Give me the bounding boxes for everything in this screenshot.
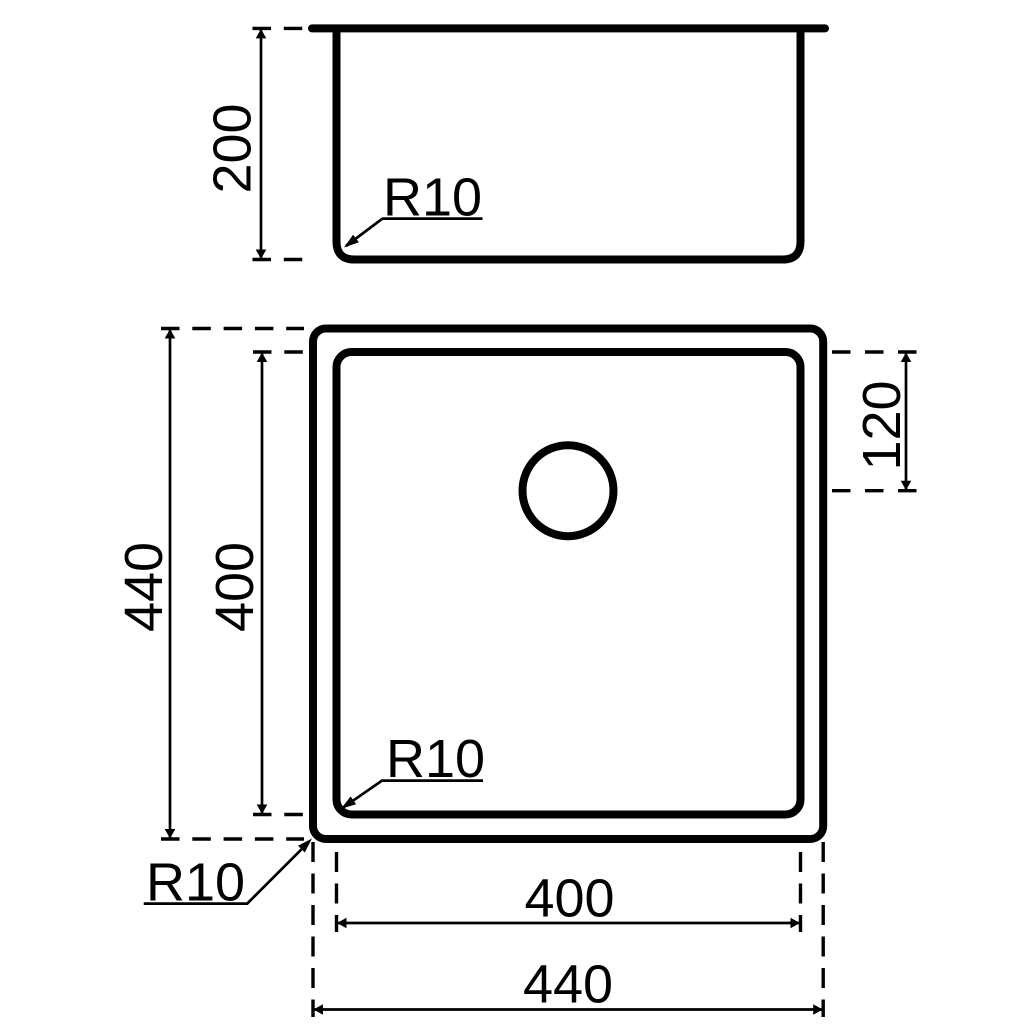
- svg-text:440: 440: [114, 542, 174, 632]
- svg-text:440: 440: [523, 955, 613, 1015]
- svg-text:200: 200: [203, 103, 263, 193]
- svg-text:400: 400: [205, 542, 265, 632]
- svg-text:120: 120: [852, 380, 912, 470]
- svg-text:400: 400: [524, 869, 614, 929]
